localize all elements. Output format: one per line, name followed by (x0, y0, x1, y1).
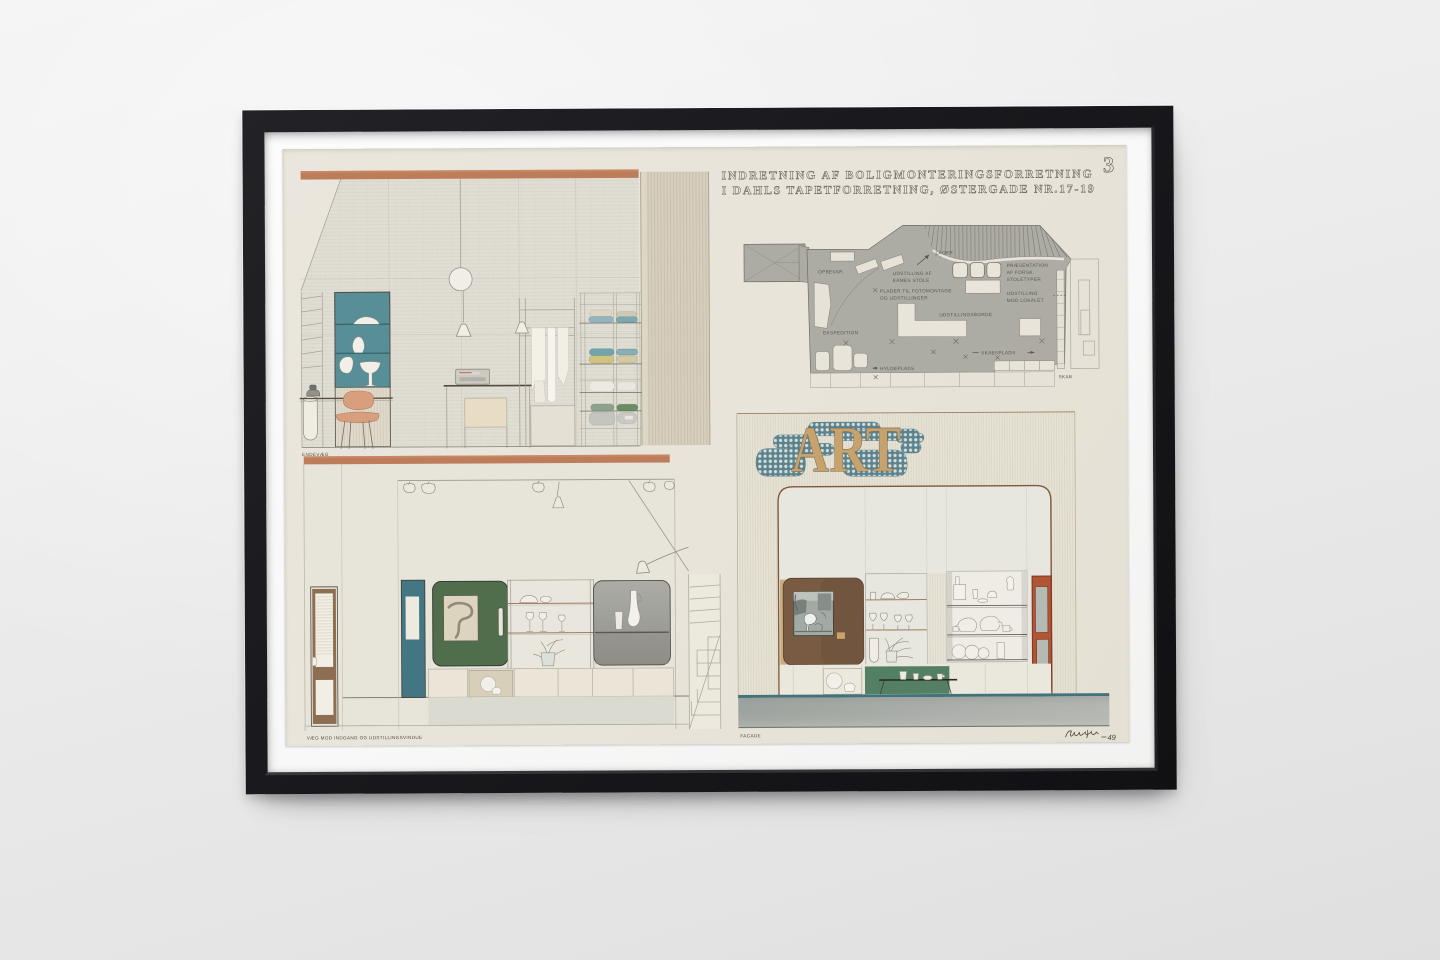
svg-text:OG UDSTILLINGER: OG UDSTILLINGER (880, 295, 928, 300)
svg-text:HYLDEPLADS: HYLDEPLADS (880, 366, 915, 371)
svg-text:SKAB: SKAB (1059, 374, 1073, 379)
svg-text:ART: ART (791, 413, 901, 487)
svg-text:UDSTILLING AF: UDSTILLING AF (893, 271, 932, 276)
svg-text:ENDEVÆG: ENDEVÆG (302, 452, 329, 457)
svg-text:I DAHLS TAPETFORRETNING, ØSTER: I DAHLS TAPETFORRETNING, ØSTERGADE NR.17… (722, 182, 1094, 197)
svg-text:UDSTILLING: UDSTILLING (1007, 291, 1038, 296)
svg-text:AF FORSK.: AF FORSK. (1007, 270, 1035, 275)
svg-text:FACADE: FACADE (740, 733, 761, 738)
svg-text:STOLETYPER: STOLETYPER (1007, 277, 1042, 282)
svg-text:OPBEVAR.: OPBEVAR. (818, 269, 844, 274)
svg-text:3: 3 (1103, 152, 1114, 177)
svg-text:EAMES STOLE: EAMES STOLE (893, 278, 930, 283)
svg-text:PRÆSENTATION: PRÆSENTATION (1007, 263, 1049, 268)
svg-text:EKSPEDITION: EKSPEDITION (823, 330, 858, 335)
svg-text:LAGER: LAGER (935, 250, 953, 255)
svg-text:MOD LOKALET: MOD LOKALET (1007, 298, 1044, 303)
svg-text:SKABSPLADS: SKABSPLADS (981, 350, 1016, 355)
svg-text:PLADER TIL FOTOMONTAGE: PLADER TIL FOTOMONTAGE (880, 288, 952, 293)
svg-text:49: 49 (1107, 733, 1116, 742)
svg-text:INDRETNING AF BOLIGMONTERINGSF: INDRETNING AF BOLIGMONTERINGSFORRETNING (722, 167, 1092, 182)
svg-text:UDSTILLINGSBORDE: UDSTILLINGSBORDE (939, 312, 992, 317)
svg-text:VÆG MOD INDGANG OG UDSTILLINGS: VÆG MOD INDGANG OG UDSTILLINGSVINDUE (307, 735, 423, 741)
